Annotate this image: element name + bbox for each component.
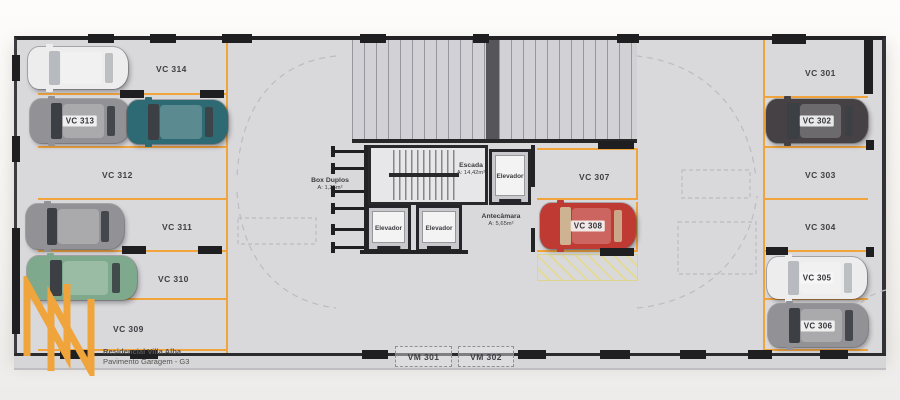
car-mirror	[557, 248, 564, 252]
level-name: Pavimento Garagem - G3	[103, 357, 190, 367]
column	[362, 350, 388, 359]
car-plate-label: VC 313	[63, 116, 97, 127]
box-partition	[334, 167, 364, 170]
stairwell: Escada A: 14,42m²	[368, 145, 488, 205]
spot-label: VC 309	[113, 324, 144, 334]
box-partition	[334, 190, 364, 193]
box-partition	[334, 150, 364, 153]
spot-vm-301: VM 301	[395, 346, 452, 367]
column	[772, 34, 806, 44]
car-windshield	[788, 261, 799, 295]
column	[12, 136, 20, 162]
ramp-divider	[486, 40, 499, 139]
spot-label: VC 311	[162, 222, 192, 232]
ramp-lane-right	[499, 40, 637, 139]
car-mirror	[786, 301, 793, 305]
car-mirror	[786, 346, 793, 350]
column	[360, 34, 386, 43]
spot-label: VM 301	[408, 352, 440, 362]
spot-label: VC 303	[805, 170, 836, 180]
car-rear-window	[614, 210, 622, 242]
car-roof	[160, 105, 201, 139]
car-windshield	[49, 51, 60, 85]
column	[222, 34, 252, 43]
elevator-door	[499, 199, 521, 203]
car-windshield	[560, 207, 571, 245]
car-mirror	[48, 96, 55, 100]
column	[88, 34, 114, 43]
column	[200, 90, 224, 98]
spot-label: VC 307	[579, 172, 610, 182]
car-plate-label: VC 302	[800, 116, 834, 127]
column	[866, 140, 874, 150]
car-rear-window	[112, 263, 121, 294]
car-mirror	[48, 142, 55, 146]
car-mirror	[145, 143, 152, 147]
car-rear-window	[845, 310, 853, 340]
column	[150, 34, 176, 43]
ramp-lane-left	[352, 40, 486, 139]
core-wall	[360, 250, 468, 254]
car-rear-window	[845, 106, 853, 137]
stair-rail	[389, 173, 459, 177]
column	[473, 34, 489, 43]
plan-caption: Residencial Villa Alba Pavimento Garagem…	[103, 347, 190, 368]
column	[120, 90, 144, 98]
column	[600, 248, 634, 256]
elevator-3: Elevador	[416, 205, 462, 252]
car-plate-label: VC 305	[800, 273, 834, 284]
spot-label: VC 314	[156, 64, 187, 74]
spot-vc-304: VC 304	[765, 200, 868, 252]
car-mirror	[145, 97, 152, 101]
column	[680, 350, 706, 359]
car-windshield	[787, 103, 798, 139]
vehicle-ramp	[352, 40, 637, 143]
stairs-label: Escada A: 14,42m²	[455, 162, 487, 178]
car-vc-313-second	[127, 100, 228, 144]
column	[864, 40, 873, 94]
car-windshield	[789, 308, 800, 343]
spot-vc-312: VC 312	[38, 148, 226, 200]
car-rear-window	[205, 107, 213, 138]
logo-monogram-icon	[18, 276, 110, 376]
spot-label: VC 310	[158, 274, 189, 284]
spot-label: VM 302	[470, 352, 502, 362]
project-name: Residencial Villa Alba	[103, 347, 190, 357]
car-roof	[58, 209, 98, 244]
car-mirror	[47, 253, 54, 257]
car-vc-311	[26, 204, 124, 249]
no-parking-hatch	[537, 254, 638, 281]
spot-vc-303: VC 303	[765, 148, 868, 200]
box-partition	[334, 246, 364, 249]
car-windshield	[148, 104, 159, 140]
elevator-1: Elevador	[489, 149, 531, 205]
car-vc-305: VC 305	[767, 257, 867, 299]
column	[198, 246, 222, 254]
column	[748, 350, 772, 359]
car-rear-window	[105, 53, 113, 82]
column	[518, 350, 546, 359]
car-mirror	[557, 200, 564, 204]
car-vc-314	[28, 47, 128, 89]
core-wall	[531, 145, 535, 187]
column	[122, 246, 146, 254]
column	[12, 55, 20, 81]
car-mirror	[44, 201, 51, 205]
garage-floorplan: VC 314 VC 312 VC 311 VC 310 VC 309 VC 30…	[0, 0, 900, 400]
car-mirror	[46, 88, 53, 92]
elevator-2: Elevador	[366, 205, 411, 252]
spot-label: VC 304	[805, 222, 836, 232]
car-mirror	[46, 44, 53, 48]
column	[820, 350, 848, 359]
car-rear-window	[107, 106, 115, 137]
box-partition	[334, 228, 364, 231]
car-mirror	[784, 142, 791, 146]
core-wall	[531, 228, 535, 252]
column	[600, 350, 630, 359]
car-mirror	[784, 96, 791, 100]
spot-label: VC 301	[805, 68, 836, 78]
car-windshield	[47, 208, 58, 245]
spot-label: VC 312	[102, 170, 133, 180]
column	[617, 34, 639, 43]
box-partition	[334, 207, 364, 210]
spot-vc-301: VC 301	[765, 40, 868, 98]
car-windshield	[51, 103, 62, 139]
column	[598, 141, 634, 149]
car-mirror	[44, 248, 51, 252]
car-roof	[61, 52, 102, 85]
car-vc-308: VC 308	[540, 203, 636, 249]
core-wall	[364, 145, 368, 252]
car-rear-window	[844, 263, 852, 292]
column	[866, 247, 874, 257]
car-plate-label: VC 308	[571, 221, 605, 232]
car-vc-313: VC 313	[30, 99, 130, 143]
car-plate-label: VC 306	[801, 320, 835, 331]
spot-vm-302: VM 302	[458, 346, 514, 367]
car-vc-306: VC 306	[768, 304, 868, 347]
column	[766, 247, 788, 255]
spot-vc-307: VC 307	[537, 148, 638, 200]
car-rear-window	[101, 211, 109, 243]
car-vc-302: VC 302	[766, 99, 868, 143]
